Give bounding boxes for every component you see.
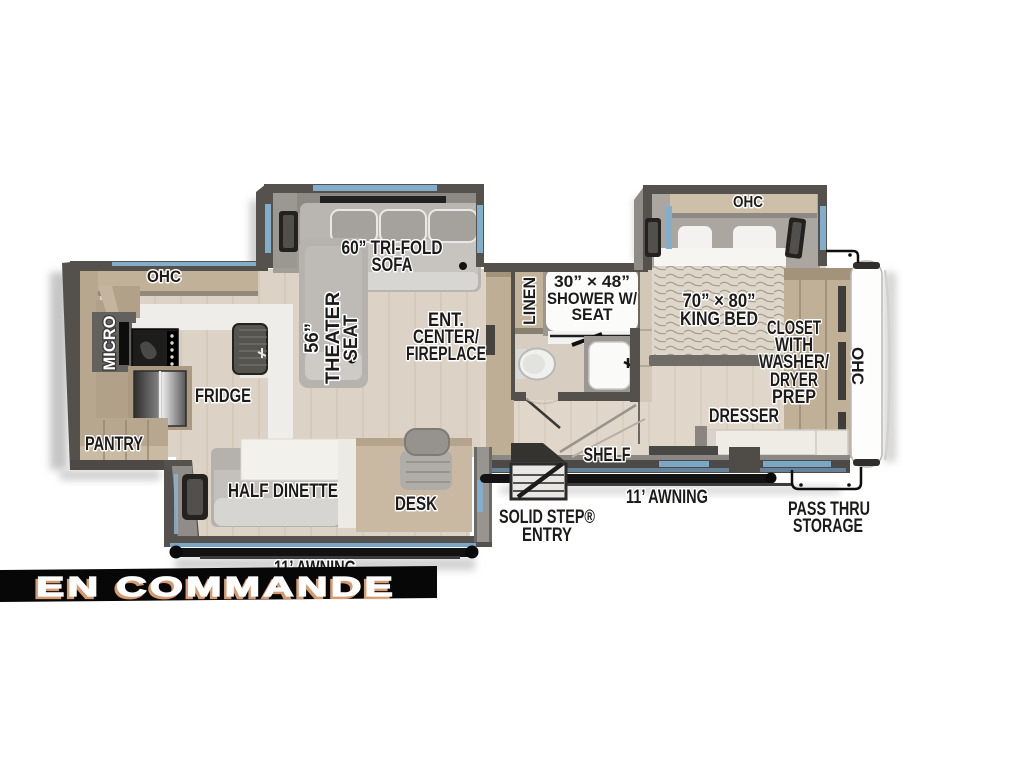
svg-text:OHC: OHC [733,194,763,211]
svg-text:EN COMMANDE: EN COMMANDE [36,571,396,602]
svg-text:56”: 56” [302,323,323,353]
svg-text:PREP: PREP [772,387,816,408]
svg-text:MICRO: MICRO [100,316,119,371]
svg-text:KING BED: KING BED [680,309,758,330]
svg-text:SHELF: SHELF [584,445,631,466]
svg-text:LINEN: LINEN [520,277,539,325]
svg-text:OHC: OHC [147,267,181,286]
svg-text:DESK: DESK [395,494,437,515]
svg-text:SEAT: SEAT [341,315,362,361]
svg-text:FRIDGE: FRIDGE [195,386,251,407]
svg-text:DRESSER: DRESSER [709,406,779,427]
svg-text:30” × 48”: 30” × 48” [554,273,630,291]
svg-text:PANTRY: PANTRY [85,434,143,455]
svg-text:OHC: OHC [848,347,867,385]
svg-text:11’ AWNING: 11’ AWNING [626,487,708,508]
svg-text:STORAGE: STORAGE [793,516,863,537]
svg-text:SEAT: SEAT [572,306,613,324]
svg-text:ENTRY: ENTRY [522,525,572,546]
svg-text:SOFA: SOFA [372,255,413,276]
svg-text:HALF DINETTE: HALF DINETTE [228,481,338,502]
svg-text:FIREPLACE: FIREPLACE [406,344,486,365]
